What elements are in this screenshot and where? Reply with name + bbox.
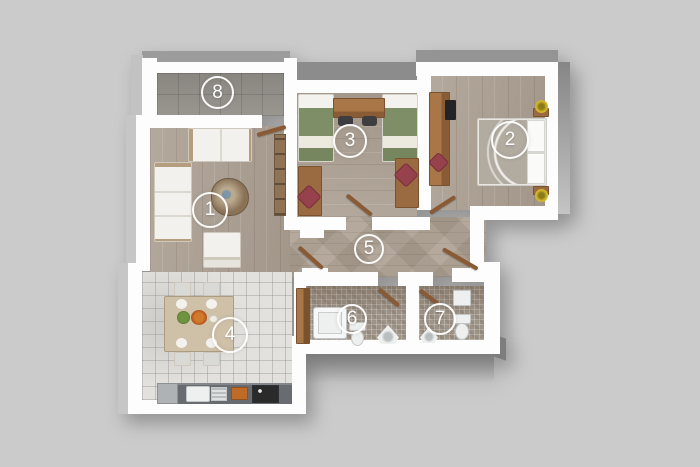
desk-chair	[362, 116, 377, 126]
room-marker-toilet: 7	[424, 303, 456, 335]
room-number: 2	[505, 129, 516, 151]
floor-plan-scene: 1 2 3 4 5 6 7 8	[0, 0, 700, 467]
wall-hallway-stub	[300, 228, 324, 238]
wall-living-left	[136, 115, 150, 271]
toilet-bowl	[455, 323, 469, 340]
tv-screen	[445, 100, 456, 120]
double-bed-pillows	[527, 120, 545, 184]
ladder-shelf	[274, 134, 286, 216]
plate	[176, 299, 187, 309]
room-number: 7	[435, 308, 446, 330]
twin-bed-right	[382, 94, 418, 162]
sofa-two-seat	[188, 128, 252, 162]
room-marker-balcony: 8	[201, 76, 234, 109]
sofa-three-seat	[154, 162, 192, 242]
side-face-right-bedroom	[557, 62, 570, 214]
wall-balcony-living-divider	[136, 115, 262, 128]
room-number: 6	[347, 308, 358, 330]
dining-chair	[174, 352, 191, 366]
room-marker-living: 1	[192, 192, 228, 228]
room-marker-kitchen: 4	[212, 317, 248, 353]
wall-kitchen-left	[128, 263, 142, 414]
armchair	[203, 232, 241, 268]
room-number: 4	[225, 324, 236, 346]
food-platter	[191, 310, 207, 325]
salad-bowl	[177, 311, 190, 324]
dining-chair	[203, 282, 220, 296]
room-number: 8	[212, 82, 223, 104]
roof-edge-bedroom-twin	[292, 62, 430, 81]
wall-cabinet	[453, 290, 471, 306]
room-marker-bedroom-double: 2	[491, 121, 529, 159]
room-number: 1	[205, 199, 216, 221]
sink-drainer	[211, 387, 227, 401]
wall-hallway-right	[470, 212, 484, 270]
plate	[176, 338, 187, 348]
wall-entry-stub	[302, 268, 328, 280]
desk	[333, 98, 385, 118]
room-marker-hallway: 5	[354, 234, 384, 264]
side-face-bottom-bath	[298, 353, 494, 383]
entry-cabinet	[296, 288, 310, 344]
wall-bedroom-twin-bottom-right	[372, 217, 430, 230]
cutting-board	[231, 387, 248, 400]
plate	[206, 299, 217, 309]
wall-bath-bottom	[296, 340, 500, 354]
room-number: 3	[345, 130, 356, 152]
plant-pot	[535, 100, 548, 113]
stove	[252, 385, 279, 403]
room-marker-bathroom: 6	[337, 304, 367, 334]
wall-balcony-top	[142, 62, 290, 73]
kitchen-sink	[186, 386, 210, 402]
room-number: 5	[364, 238, 375, 260]
wall-bedroom-twin-top	[284, 80, 430, 93]
dining-chair	[174, 282, 191, 296]
wall-bedroom-double-top	[416, 62, 558, 76]
twin-bed-left	[298, 94, 334, 162]
plant-pot	[535, 189, 548, 202]
room-marker-bedroom-twin: 3	[333, 124, 367, 158]
apartment-plan: 1 2 3 4 5 6 7 8	[0, 0, 700, 467]
fridge	[157, 383, 178, 404]
dining-chair	[203, 352, 220, 366]
wall-wc-top-left	[419, 272, 433, 286]
